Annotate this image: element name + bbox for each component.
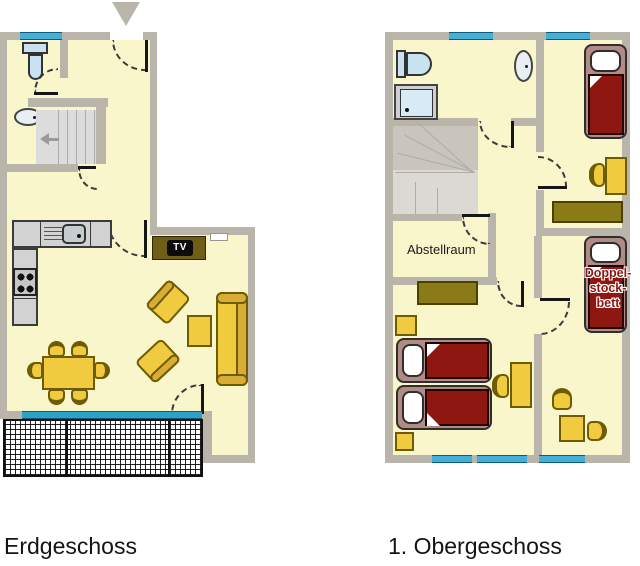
bunk-bed-label-line: stock- xyxy=(570,281,640,296)
blanket-fold xyxy=(427,413,440,426)
dresser xyxy=(417,281,478,305)
blanket-fold xyxy=(590,76,602,88)
wall xyxy=(385,32,630,40)
toilet-icon xyxy=(396,50,406,78)
bed-pillow xyxy=(590,242,621,263)
bed-pillow xyxy=(402,344,424,377)
table xyxy=(559,415,585,442)
bed-pillow xyxy=(590,50,621,72)
bunk-bed-label-line: bett xyxy=(570,296,640,311)
window xyxy=(432,455,472,463)
bedroom2-door-leaf xyxy=(521,281,524,307)
bunk-bed-label: Doppel- stock- bett xyxy=(570,266,640,311)
wall xyxy=(534,334,542,455)
floor-label-upper: 1. Obergeschoss xyxy=(388,533,562,560)
desk xyxy=(510,362,532,408)
floor-plan-upper: Abstellraum Doppel- stock- bett xyxy=(0,0,320,566)
wall xyxy=(385,32,393,463)
wall xyxy=(536,40,544,152)
floor-plan-canvas: TV xyxy=(0,0,640,566)
floor-label-ground: Erdgeschoss xyxy=(4,533,137,560)
sink-icon xyxy=(514,50,533,82)
bed-pillow xyxy=(402,391,424,424)
chair xyxy=(587,421,607,441)
window xyxy=(449,32,493,40)
chair xyxy=(552,388,572,410)
desk-chair xyxy=(492,374,509,398)
stairs xyxy=(393,126,478,214)
window xyxy=(539,455,585,463)
desk-chair xyxy=(589,163,605,187)
bedroom1-door-leaf xyxy=(538,186,567,189)
bunk-bed-label-line: Doppel- xyxy=(570,266,640,281)
storage-room-label: Abstellraum xyxy=(407,242,476,257)
blanket-fold xyxy=(427,344,440,357)
nightstand xyxy=(395,315,417,336)
dresser xyxy=(552,201,623,223)
wall xyxy=(393,213,462,221)
toilet-bowl-icon xyxy=(406,52,432,76)
window xyxy=(546,32,590,40)
wall xyxy=(536,228,630,236)
desk xyxy=(605,157,627,195)
wall xyxy=(534,236,542,298)
nightstand xyxy=(395,432,414,451)
wall xyxy=(511,118,536,126)
bathroom-door-leaf xyxy=(511,121,514,148)
window xyxy=(477,455,527,463)
shower-icon xyxy=(394,84,438,120)
